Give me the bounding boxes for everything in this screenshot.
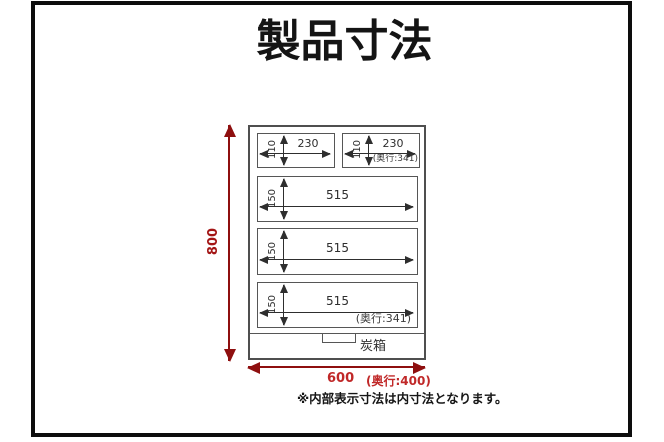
drawer-large-bottom: 150 515 (奥行:341) [257, 282, 418, 328]
drawer-top-left: 110 230 [257, 133, 335, 168]
width-dimension-label: 230 [368, 137, 418, 150]
page-title: 製品寸法 [44, 19, 645, 65]
depth-dimension-label: (奥行:341) [373, 151, 418, 164]
width-dimension-arrow [260, 206, 413, 207]
overall-depth-label: (奥行:400) [366, 372, 431, 389]
overall-width-arrow [248, 366, 425, 368]
drawer-large-top: 150 515 [257, 176, 418, 222]
charcoal-box-label: 炭箱 [360, 335, 386, 354]
overall-width-label: 600 [327, 371, 354, 386]
width-dimension-arrow [260, 153, 330, 154]
cabinet-outline: 110 230 110 230 (奥行:341) 150 515 150 515… [248, 125, 426, 360]
height-dimension-label: 110 [352, 135, 364, 164]
drawer-top-right: 110 230 (奥行:341) [342, 133, 420, 168]
width-dimension-label: 230 [283, 137, 333, 150]
width-dimension-label: 515 [258, 241, 417, 255]
width-dimension-arrow [260, 259, 413, 260]
width-dimension-label: 515 [258, 188, 417, 202]
height-dimension-label: 110 [267, 135, 279, 164]
overall-height-arrow [228, 125, 230, 361]
width-dimension-label: 515 [258, 294, 417, 308]
drawer-large-middle: 150 515 [257, 228, 418, 275]
footnote: ※内部表示寸法は内寸法となります。 [297, 388, 508, 407]
bottom-compartment-handle [322, 333, 356, 343]
depth-dimension-label: (奥行:341) [356, 310, 411, 326]
overall-height-label: 800 [206, 222, 222, 260]
